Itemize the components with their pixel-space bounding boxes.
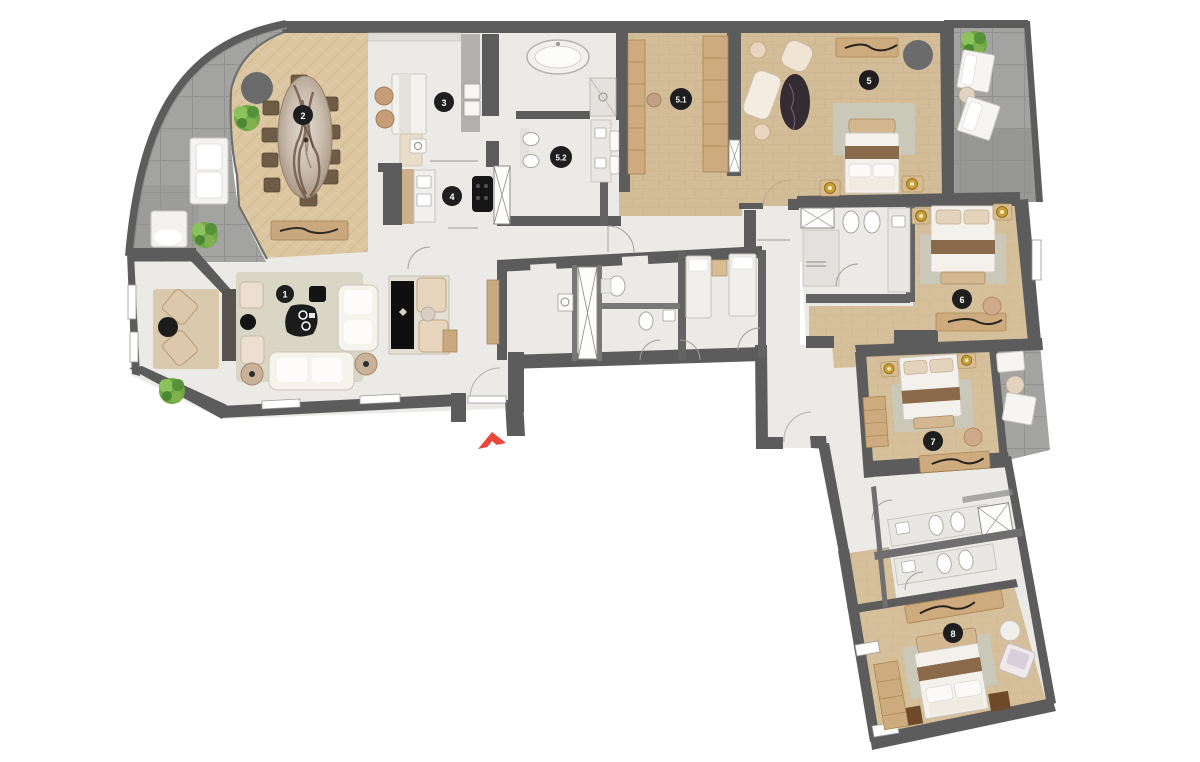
svg-text:3: 3 [441,98,446,108]
svg-text:2: 2 [300,111,305,121]
svg-text:8: 8 [950,629,955,639]
svg-text:7: 7 [930,437,935,447]
svg-text:4: 4 [449,192,454,202]
svg-text:5.1: 5.1 [675,96,687,105]
svg-text:5.2: 5.2 [555,154,567,163]
svg-text:6: 6 [959,295,964,305]
svg-text:1: 1 [282,290,287,300]
svg-text:5: 5 [866,76,871,86]
